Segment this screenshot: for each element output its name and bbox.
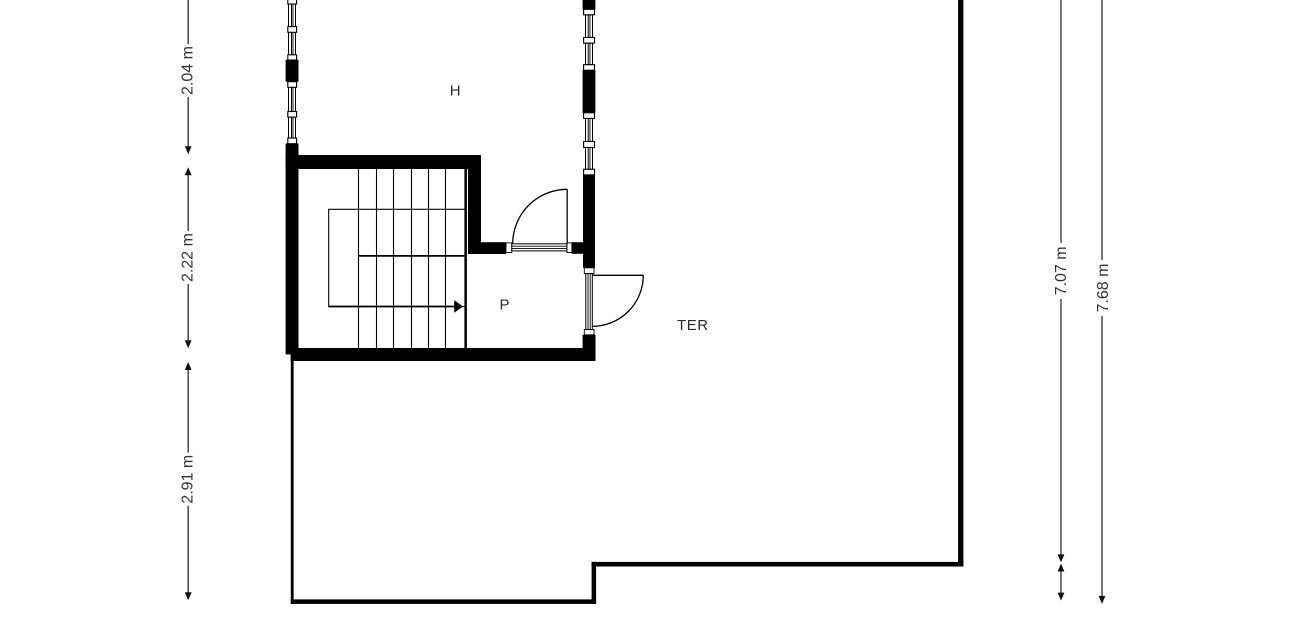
svg-text:H: H (450, 82, 461, 99)
svg-text:2.91 m: 2.91 m (179, 455, 196, 504)
svg-text:2.22 m: 2.22 m (179, 233, 196, 282)
svg-text:2.04 m: 2.04 m (179, 46, 196, 95)
svg-text:7.68 m: 7.68 m (1095, 264, 1112, 313)
svg-text:TER: TER (677, 317, 709, 334)
svg-text:7.07 m: 7.07 m (1053, 246, 1070, 295)
svg-text:P: P (499, 297, 509, 314)
